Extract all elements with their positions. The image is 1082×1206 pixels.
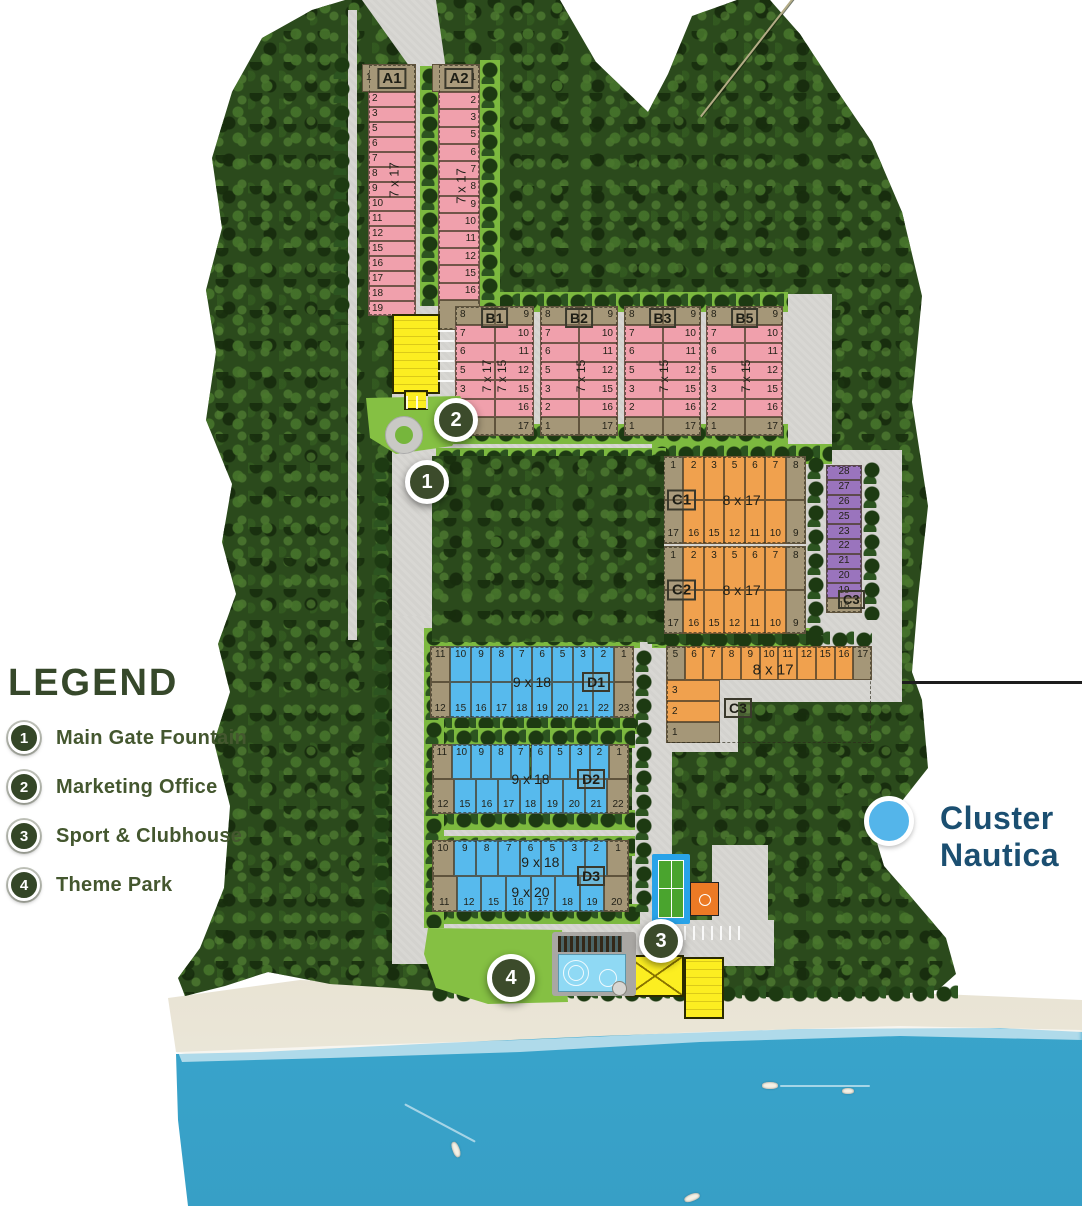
lot-number: 19 xyxy=(537,704,548,714)
lot-number: 9 xyxy=(690,310,696,320)
lot-number: 15 xyxy=(518,385,529,395)
tennis-court xyxy=(652,854,690,924)
lot-cell: 17 xyxy=(495,417,535,436)
lot-number: 2 xyxy=(691,551,697,561)
lot-cell: 27 xyxy=(826,480,862,495)
lot-number: 10 xyxy=(763,650,774,660)
block-B2: 87653219101112151617B27 x 15 xyxy=(540,306,618,436)
block-label: D3 xyxy=(577,866,605,886)
lot-number: 5 xyxy=(732,461,738,471)
lot-cell: 12 xyxy=(797,646,816,680)
lot-cell: 10 xyxy=(765,500,785,544)
lot-number: 12 xyxy=(685,366,696,376)
lot-number: 16 xyxy=(481,800,492,810)
block-label: D1 xyxy=(582,672,610,692)
lot-cell: 1 xyxy=(607,840,629,876)
lot-number: 2 xyxy=(672,707,678,717)
block-B3: 87653219101112151617B37 x 15 xyxy=(624,306,701,436)
parking-stripes xyxy=(438,330,454,388)
lot-number: 6 xyxy=(538,748,544,758)
lot-cell: 17 xyxy=(853,646,872,680)
lot-cell: 11 xyxy=(432,876,457,912)
block-label: D2 xyxy=(577,769,605,789)
lot-number: 5 xyxy=(550,844,556,854)
siteplan-map: 1A1235678910111215161718197 x 171A223567… xyxy=(0,0,1082,1206)
lot-number: 15 xyxy=(488,898,499,908)
lot-number: 10 xyxy=(770,529,781,539)
lot-number: 9 xyxy=(470,200,476,210)
lot-cell: 15 xyxy=(368,241,416,256)
lot-number: 1 xyxy=(366,73,372,83)
lot-number: 17 xyxy=(668,529,679,539)
lot-number: 3 xyxy=(711,385,717,395)
lot-cell: 11 xyxy=(430,646,450,682)
lot-number: 22 xyxy=(612,800,623,810)
block-size-label: 8 x 17 xyxy=(753,662,794,679)
legend-marker-4: 4 xyxy=(8,869,40,901)
lot-cell: 25 xyxy=(826,509,862,524)
lot-cell: 1 xyxy=(624,417,663,436)
lot-cell: 7 xyxy=(498,840,520,876)
lot-number: 16 xyxy=(688,619,699,629)
lot-number: 16 xyxy=(688,529,699,539)
legend: LEGEND 1 Main Gate Fountain 2 Marketing … xyxy=(8,662,247,901)
block-label: A2 xyxy=(444,68,473,89)
lot-number: 15 xyxy=(767,385,778,395)
legend-label: Sport & Clubhouse xyxy=(56,825,242,848)
lot-number: 16 xyxy=(475,704,486,714)
cluster-name-line1: Cluster xyxy=(940,800,1059,837)
lot-cell: 7 xyxy=(765,456,785,500)
block-size-label: 7 x 15 xyxy=(495,360,509,393)
lot-number: 7 xyxy=(629,329,635,339)
lot-number: 17 xyxy=(767,422,778,432)
lot-number: 3 xyxy=(470,113,476,123)
block-size-label: 9 x 20 xyxy=(511,884,549,900)
lot-number: 11 xyxy=(437,748,447,758)
lot-cell: 20 xyxy=(552,682,572,718)
lot-cell: 1 xyxy=(666,722,720,743)
lot-number: 16 xyxy=(372,259,383,269)
lot-cell: 12 xyxy=(368,226,416,241)
lot-number: 8 xyxy=(729,650,735,660)
tree-col xyxy=(372,455,392,935)
lot-number: 3 xyxy=(711,461,717,471)
lot-number: 8 xyxy=(498,748,504,758)
lot-number: 5 xyxy=(673,650,679,660)
lot-number: 17 xyxy=(518,422,529,432)
lot-number: 15 xyxy=(708,619,719,629)
lot-number: 16 xyxy=(518,403,529,413)
tree-col xyxy=(862,460,882,620)
lot-number: 6 xyxy=(539,650,545,660)
block-label: C3 xyxy=(724,698,752,718)
lot-number: 7 xyxy=(519,650,525,660)
lot-cell: 17 xyxy=(579,417,618,436)
block-size-label: 7 x 15 xyxy=(657,360,671,393)
lot-number: 6 xyxy=(372,139,378,149)
lot-cell: 1 xyxy=(614,646,634,682)
lot-number: 8 xyxy=(372,169,378,179)
lot-number: 11 xyxy=(750,619,760,629)
lot-number: 12 xyxy=(372,229,383,239)
lot-cell: 9 xyxy=(471,646,491,682)
lot-cell: 7 xyxy=(703,646,722,680)
lot-number: 7 xyxy=(773,551,779,561)
lot-number: 23 xyxy=(618,704,629,714)
lot-cell: 5 xyxy=(550,744,570,779)
lot-cell: 16 xyxy=(745,399,784,418)
lot-number: 7 xyxy=(710,650,716,660)
lot-cell: 18 xyxy=(368,286,416,301)
lot-number: 11 xyxy=(372,214,382,224)
lot-number: 8 xyxy=(629,310,635,320)
lot-number: 7 xyxy=(460,329,466,339)
lot-number: 11 xyxy=(466,234,476,244)
lot-number: 5 xyxy=(557,748,563,758)
lot-number: 6 xyxy=(629,347,635,357)
lot-cell: 23 xyxy=(826,524,862,539)
road xyxy=(712,845,768,931)
lot-number: 5 xyxy=(629,366,635,376)
parking-stripes xyxy=(406,396,436,409)
block-label: B3 xyxy=(649,308,677,328)
lot-number: 8 xyxy=(460,310,466,320)
lot-cell: 2 xyxy=(368,92,416,107)
lot-cell: 15 xyxy=(816,646,835,680)
lot-number: 3 xyxy=(672,686,678,696)
spa-pool xyxy=(612,981,627,996)
lot-number: 2 xyxy=(629,403,635,413)
lot-number: 15 xyxy=(455,704,466,714)
lot-number: 3 xyxy=(372,109,378,119)
lot-number: 6 xyxy=(470,148,476,158)
lot-number: 16 xyxy=(767,403,778,413)
legend-title: LEGEND xyxy=(8,662,247,705)
lot-number: 15 xyxy=(459,800,470,810)
boat-icon xyxy=(842,1088,854,1094)
lot-number: 17 xyxy=(496,704,507,714)
lot-number: 5 xyxy=(711,366,717,376)
lot-number: 1 xyxy=(672,728,678,738)
lot-cell: 15 xyxy=(450,682,470,718)
lot-cell: 15 xyxy=(454,779,476,814)
lot-number: 15 xyxy=(685,385,696,395)
lot-number: 26 xyxy=(838,497,849,507)
lot-number: 17 xyxy=(685,422,696,432)
lot-cell: 1 xyxy=(706,417,745,436)
lot-number: 2 xyxy=(545,403,551,413)
lot-number: 3 xyxy=(711,551,717,561)
lot-cell: 5 xyxy=(438,127,480,144)
lot-cell: 2 xyxy=(666,701,720,722)
lot-number: 17 xyxy=(372,274,383,284)
block-C3_strip: 28272625232221201918C3 xyxy=(826,465,862,613)
legend-item-clubhouse: 3 Sport & Clubhouse xyxy=(8,820,247,852)
lot-cell: 20 xyxy=(826,569,862,584)
lot-number: 10 xyxy=(465,217,476,227)
block-size-label: 9 x 18 xyxy=(511,771,549,787)
block-label: A1 xyxy=(377,68,406,89)
lot-number: 9 xyxy=(747,650,753,660)
lot-number: 1 xyxy=(711,422,717,432)
legend-marker-3: 3 xyxy=(8,820,40,852)
lot-number: 9 xyxy=(793,529,799,539)
lot-cell: 6 xyxy=(438,144,480,161)
lot-cell: 8 xyxy=(491,744,511,779)
lot-number: 12 xyxy=(602,366,613,376)
lot-number: 11 xyxy=(750,529,760,539)
parking-stripes xyxy=(684,926,742,940)
lot-cell: 3 xyxy=(368,107,416,122)
lot-cell: 11 xyxy=(368,211,416,226)
lot-cell: 17 xyxy=(491,682,511,718)
block-label: C1 xyxy=(667,490,696,511)
lot-number: 21 xyxy=(838,556,849,566)
lot-number: 23 xyxy=(838,527,849,537)
block-size-label: 9 x 18 xyxy=(521,854,559,870)
lot-number: 5 xyxy=(732,551,738,561)
lot-cell: 2 xyxy=(540,399,579,418)
lot-number: 3 xyxy=(571,844,577,854)
lot-number: 8 xyxy=(484,844,490,854)
block-C1: 12356781716151211109C18 x 17 xyxy=(663,456,806,544)
block-label: B1 xyxy=(481,308,509,328)
lot-cell: 8 xyxy=(476,840,498,876)
lot-cell: 9 xyxy=(471,744,491,779)
tree-col xyxy=(806,455,826,635)
cluster-name-line2: Nautica xyxy=(940,837,1059,874)
lot-number: 11 xyxy=(686,347,696,357)
lot-number: 15 xyxy=(602,385,613,395)
lot-cell: 28 xyxy=(826,465,862,480)
basketball-court xyxy=(690,882,719,916)
lot-number: 2 xyxy=(691,461,697,471)
lot-cell: 5 xyxy=(666,646,685,680)
lot-number: 18 xyxy=(525,800,536,810)
lot-cell: 9 xyxy=(786,500,806,544)
lot-number: 21 xyxy=(591,800,602,810)
lot-cell: 8 xyxy=(786,456,806,500)
lot-number: 8 xyxy=(711,310,717,320)
lot-number: 10 xyxy=(770,619,781,629)
lot-number: 1 xyxy=(621,650,627,660)
lot-number: 12 xyxy=(437,800,448,810)
cluster-name: Cluster Nautica xyxy=(940,800,1059,874)
lot-cell: 10 xyxy=(452,744,472,779)
lot-cell: 15 xyxy=(704,590,724,634)
lot-number: 2 xyxy=(470,96,476,106)
lot-number: 5 xyxy=(560,650,566,660)
lot-number: 15 xyxy=(708,529,719,539)
lot-cell: 8 xyxy=(722,646,741,680)
lot-cell: 16 xyxy=(476,779,498,814)
lot-number: 22 xyxy=(838,541,849,551)
lot-number: 3 xyxy=(580,650,586,660)
lot-number: 15 xyxy=(820,650,831,660)
lot-number: 12 xyxy=(767,366,778,376)
lot-number: 18 xyxy=(562,898,573,908)
lot-number: 11 xyxy=(439,898,449,908)
lot-number: 2 xyxy=(601,650,607,660)
lot-number: 5 xyxy=(470,130,476,140)
lot-number: 3 xyxy=(460,385,466,395)
tree-col xyxy=(420,66,440,306)
lot-cell: 11 xyxy=(432,744,452,779)
lot-number: 25 xyxy=(838,512,849,522)
lot-cell: 1 xyxy=(609,744,629,779)
lot-cell: 15 xyxy=(438,265,480,282)
lot-cell: 21 xyxy=(826,554,862,569)
tree-col xyxy=(634,648,654,913)
lot-cell: 16 xyxy=(663,399,702,418)
lot-cell: 3 xyxy=(704,456,724,500)
block-label: C3 xyxy=(838,590,865,609)
lot-number: 9 xyxy=(478,748,484,758)
legend-label: Theme Park xyxy=(56,874,172,897)
lot-number: 5 xyxy=(545,366,551,376)
block-B5: 87653219101112151617B57 x 15 xyxy=(706,306,783,436)
lot-number: 10 xyxy=(518,329,529,339)
lot-cell: 10 xyxy=(450,646,470,682)
block-size-label: 7 x 17 xyxy=(387,162,402,197)
lot-cell: 1 xyxy=(540,417,579,436)
lot-number: 1 xyxy=(670,551,676,561)
lot-number: 7 xyxy=(372,154,378,164)
marker-marketing: 2 xyxy=(434,398,478,442)
lot-number: 10 xyxy=(602,329,613,339)
lot-cell: 6 xyxy=(685,646,704,680)
clubhouse-building xyxy=(684,957,724,1019)
block-size-label: 7 x 17 xyxy=(454,169,469,204)
lot-number: 9 xyxy=(772,310,778,320)
boundary-line xyxy=(896,681,1082,684)
lot-number: 16 xyxy=(602,403,613,413)
lot-number: 10 xyxy=(685,329,696,339)
marker-theme-park: 4 xyxy=(487,954,535,1002)
undeveloped-field xyxy=(432,456,664,642)
lot-number: 1 xyxy=(629,422,635,432)
legend-label: Marketing Office xyxy=(56,776,218,799)
lot-cell: 3 xyxy=(666,680,720,701)
lot-cell: 12 xyxy=(457,876,482,912)
lot-number: 1 xyxy=(615,844,621,854)
cluster-dot-icon xyxy=(864,796,914,846)
lot-number: 6 xyxy=(528,844,534,854)
lot-number: 11 xyxy=(603,347,613,357)
lot-number: 18 xyxy=(372,289,383,299)
block-size-label: 9 x 18 xyxy=(513,674,551,690)
lot-cell: 17 xyxy=(745,417,784,436)
lot-number: 12 xyxy=(463,898,474,908)
lot-number: 11 xyxy=(519,347,529,357)
lot-number: 10 xyxy=(456,748,467,758)
lot-cell: 8 xyxy=(786,546,806,590)
lot-number: 7 xyxy=(545,329,551,339)
lot-cell: 16 xyxy=(368,256,416,271)
lot-number: 19 xyxy=(587,898,598,908)
lot-number: 7 xyxy=(518,748,524,758)
lot-number: 6 xyxy=(711,347,717,357)
lot-cell: 5 xyxy=(552,646,572,682)
lot-number: 19 xyxy=(372,304,383,314)
roundabout xyxy=(385,416,423,454)
lot-number: 16 xyxy=(838,650,849,660)
lot-cell: 15 xyxy=(481,876,506,912)
lot-cell: 22 xyxy=(607,779,629,814)
lot-number: 2 xyxy=(711,403,717,413)
lot-cell: 8 xyxy=(491,646,511,682)
lot-cell: 12 xyxy=(432,779,454,814)
lot-number: 21 xyxy=(577,704,588,714)
lot-number: 10 xyxy=(767,329,778,339)
block-size-label: 7 x 15 xyxy=(574,360,588,393)
lot-number: 20 xyxy=(557,704,568,714)
lot-cell: 5 xyxy=(368,122,416,137)
block-size-label: 8 x 17 xyxy=(723,492,761,508)
block-size-label: 7 x 17 xyxy=(480,360,494,393)
lot-number: 17 xyxy=(503,800,514,810)
lot-number: 6 xyxy=(460,347,466,357)
lot-number: 3 xyxy=(577,748,583,758)
lot-number: 8 xyxy=(793,551,799,561)
lot-cell: 16 xyxy=(495,399,535,418)
lot-cell: 9 xyxy=(454,840,476,876)
block-C3_row: 567891011121516178 x 17321C3 xyxy=(666,646,872,744)
lot-number: 9 xyxy=(523,310,529,320)
lot-number: 11 xyxy=(435,650,445,660)
lot-number: 2 xyxy=(593,844,599,854)
tree-col xyxy=(332,55,352,325)
block-D3: 109876532111121516171819209 x 189 x 20D3 xyxy=(432,840,629,912)
lot-number: 2 xyxy=(597,748,603,758)
lot-number: 1 xyxy=(670,461,676,471)
boat-icon xyxy=(762,1082,778,1089)
lot-number: 12 xyxy=(518,366,529,376)
marketing-office-building xyxy=(392,314,440,394)
lot-cell: 12 xyxy=(438,248,480,265)
lot-number: 12 xyxy=(729,529,740,539)
block-D1: 111098765321121516171819202122239 x 18D1 xyxy=(430,646,634,718)
lot-number: 12 xyxy=(801,650,812,660)
block-A2: 1A223567891011121516177 x 17 xyxy=(438,64,480,330)
boat-wake xyxy=(780,1085,870,1087)
lot-number: 1 xyxy=(616,748,622,758)
lot-cell: 12 xyxy=(430,682,450,718)
marker-clubhouse: 3 xyxy=(639,919,683,963)
tree-col xyxy=(480,60,500,310)
lot-cell: 7 xyxy=(765,546,785,590)
lot-cell: 10 xyxy=(432,840,454,876)
legend-item-theme-park: 4 Theme Park xyxy=(8,869,247,901)
legend-item-main-gate: 1 Main Gate Fountain xyxy=(8,722,247,754)
lot-number: 7 xyxy=(773,461,779,471)
lot-number: 9 xyxy=(372,184,378,194)
lot-number: 9 xyxy=(607,310,613,320)
lot-cell: 6 xyxy=(368,137,416,152)
lot-cell: 2 xyxy=(438,92,480,109)
lot-number: 18 xyxy=(516,704,527,714)
lot-number: 6 xyxy=(752,461,758,471)
lot-cell: 17 xyxy=(663,417,702,436)
lot-number: 17 xyxy=(602,422,613,432)
lot-number: 10 xyxy=(437,844,448,854)
lot-number: 12 xyxy=(465,252,476,262)
block-D2: 1110987653211215161718192021229 x 18D2 xyxy=(432,744,629,814)
lot-cell: 17 xyxy=(368,271,416,286)
lot-number: 9 xyxy=(478,650,484,660)
lot-number: 20 xyxy=(611,898,622,908)
